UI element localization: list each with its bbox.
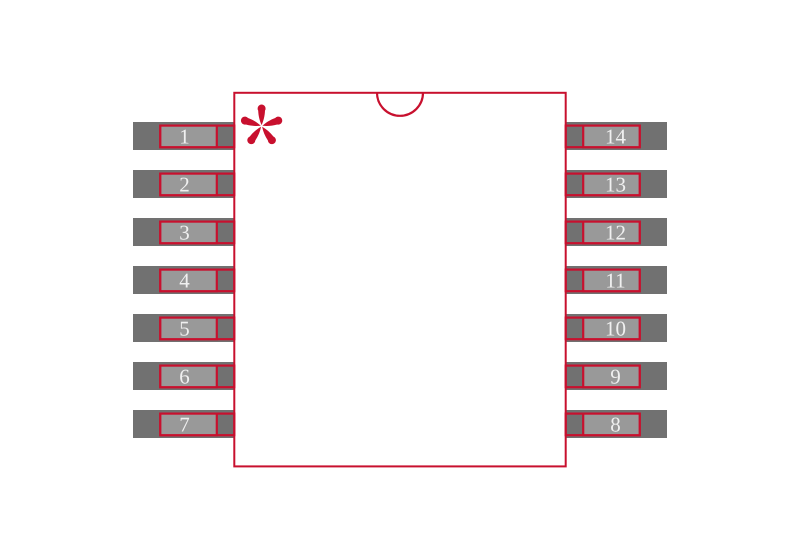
svg-text:2: 2	[179, 173, 190, 197]
svg-text:7: 7	[179, 413, 190, 437]
svg-text:6: 6	[179, 365, 190, 389]
svg-text:8: 8	[610, 413, 621, 437]
svg-text:5: 5	[179, 317, 190, 341]
svg-text:14: 14	[605, 125, 627, 149]
svg-text:9: 9	[610, 365, 621, 389]
svg-text:3: 3	[179, 221, 190, 245]
svg-text:4: 4	[179, 269, 190, 293]
svg-text:1: 1	[179, 125, 190, 149]
svg-text:13: 13	[605, 173, 626, 197]
svg-text:12: 12	[605, 221, 626, 245]
svg-text:10: 10	[605, 317, 626, 341]
svg-text:11: 11	[605, 269, 625, 293]
